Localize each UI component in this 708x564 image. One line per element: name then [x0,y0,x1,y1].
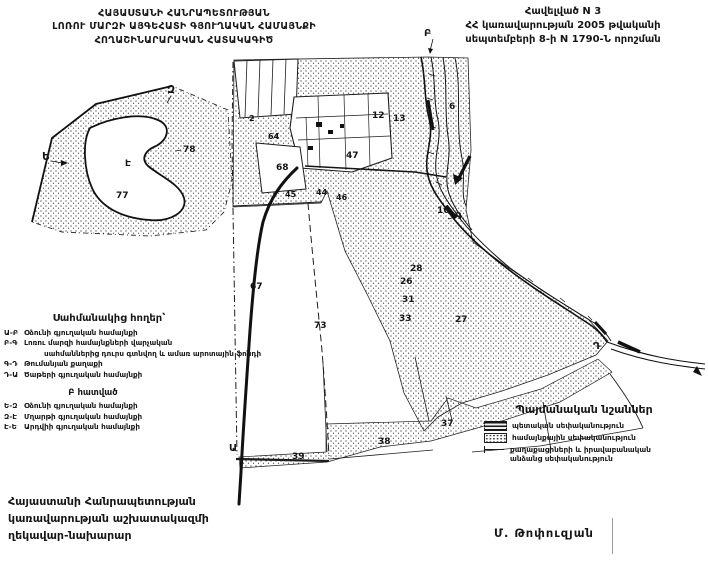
community-ownership-swatch-icon [484,433,507,443]
main-road [239,168,297,504]
map-symbols-title: Պայմանական նշաններ [462,403,706,416]
parcel-number: 37 [441,419,454,429]
parcel-number: 26 [400,277,413,287]
parcel-number: 28 [410,264,423,274]
parcel-number: 47 [346,151,359,161]
parcel-number: 27 [455,315,468,325]
parcel-number: 67 [250,282,263,292]
title-line: ՀՈՂԱՇԻՆԱՐԱՐԱԿԱՆ ՀԱՏԱԿԱԳԻԾ [18,34,350,47]
parcel-number: 38 [378,437,391,447]
adjacent-lands-list: Ա-ԲՕձունի գյուղական համայնքիԲ-ԳԼոռու մար… [4,328,240,380]
section-b-title: Բ հատված [18,388,168,398]
scan-artifact-line [612,518,613,554]
parcel-number: 77 [116,191,129,201]
parcel-number: 31 [402,295,415,305]
parcel-number: 33 [399,314,412,324]
adjacent-land-item: Զ-ԷՄղարթի գյուղական համայնքի [4,412,240,422]
adjacent-lands-title: Սահմանակից հողեր՝ [4,313,214,324]
private-ownership-swatch-icon [484,445,505,453]
signature-line: կառավարության աշխատակազմի [8,510,238,527]
boundary-point-D: Դ [593,341,601,352]
adjacent-land-item: Դ-ԱԾաթերի գյուղական համայնքի [4,370,240,380]
parcel-number: 39 [292,452,305,462]
parcel-number: 16 [437,206,450,216]
parcel-number: 68 [276,163,289,173]
parcel-number: 6 [449,102,455,112]
adjacent-land-item: Գ-ԴԹումանյան քաղաքի [4,359,240,369]
signature-line: Հայաստանի Հանրապետության [8,493,238,510]
legend-label: համայնքային սեփականություն [512,433,636,442]
boundary-point-G: Գ [455,211,463,222]
adjacent-land-item: Ա-ԲՕձունի գյուղական համայնքի [4,328,240,338]
appendix-line: ՀՀ կառավարության 2005 թվականի [420,19,706,33]
signature-block: Հայաստանի Հանրապետության կառավարության ա… [8,493,238,544]
signature-line: ղեկավար-նախարար [8,527,238,544]
boundary-point-Ee: Է [125,159,131,169]
signatory-name: Մ. Թոփուզյան [494,526,594,540]
adjacent-land-item: Բ-ԳԼոռու մարզի համայնքների վարչական [4,338,240,348]
appendix-note: Հավելված N 3 ՀՀ կառավարության 2005 թվակա… [420,5,706,48]
adjacent-land-item: Է-ԵԱրդվիի գյուղական համայնքի [4,422,240,432]
legend-item-private: քաղաքացիների և իրավաբանական անձանց սեփակ… [484,445,706,463]
parcel-number: 64 [268,132,280,141]
legend-label: պետական սեփականություն [512,421,624,430]
field-strips [234,59,298,118]
parcel-number: 45 [285,190,297,199]
legend-label: քաղաքացիների և իրավաբանական անձանց սեփակ… [510,445,680,463]
parcel-number: 44 [316,188,328,197]
appendix-line: սեպտեմբերի 8-ի N 1790-Ն որոշման [420,33,706,47]
parcel-number: 46 [336,193,348,202]
parcel-number: 13 [393,114,406,124]
state-ownership-swatch-icon [484,421,507,431]
document-title: ՀԱՅԱՍՏԱՆԻ ՀԱՆՐԱՊԵՏՈՒԹՅԱՆ ԼՈՌՈՒ ՄԱՐԶԻ ԱՅԳ… [18,7,350,47]
boundary-point-A: Ա [229,443,237,454]
parcel-number: 12 [372,111,385,121]
adjacent-land-item: Ե-ԶՕձունի գյուղական համայնքի [4,401,240,411]
parcel-number: 2 [249,114,255,123]
boundary-point-Z: Զ [167,83,175,96]
village-parcels [290,93,392,172]
boundary-point-E: Ե [42,150,50,163]
title-line: ՀԱՅԱՍՏԱՆԻ ՀԱՆՐԱՊԵՏՈՒԹՅԱՆ [18,7,350,20]
adjacent-land-item: սահմաններից դուրս գտնվող և ամառ արոտային… [24,349,240,359]
section-b-list: Ե-ԶՕձունի գյուղական համայնքիԶ-ԷՄղարթի գյ… [4,401,240,432]
cadastral-map: Բ61213264684745444616Գ28263133276773ԴԱ39… [0,0,708,564]
west-boundary [232,62,233,206]
parcel-number: 73 [314,321,327,331]
title-line: ԼՈՌՈՒ ՄԱՐԶԻ ԱՅԳԵՀԱՏԻ ԳՅՈՒՂԱԿԱՆ ՀԱՄԱՅՆՔԻ [18,20,350,33]
adjacent-lands-legend: Սահմանակից հողեր՝ Ա-ԲՕձունի գյուղական հա… [4,313,240,433]
inset-map-section-b [32,86,232,236]
parcel-number: 78 [183,145,196,155]
legend-item-state: պետական սեփականություն [484,421,706,431]
document-page: Բ61213264684745444616Գ28263133276773ԴԱ39… [0,0,708,564]
map-symbols-legend: Պայմանական նշաններ պետական սեփականությու… [462,403,706,465]
legend-item-community: համայնքային սեփականություն [484,433,706,443]
appendix-line: Հավելված N 3 [420,5,706,19]
